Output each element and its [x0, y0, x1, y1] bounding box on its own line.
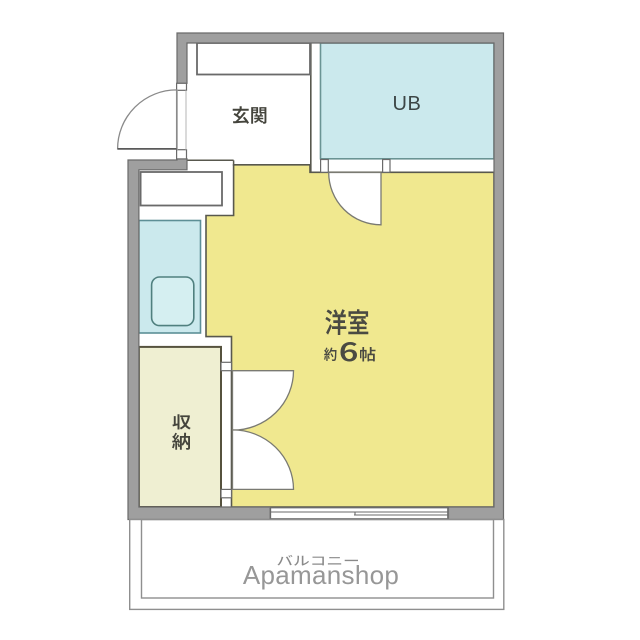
svg-text:UB: UB	[393, 93, 422, 115]
svg-text:Apamanshop: Apamanshop	[243, 560, 399, 590]
